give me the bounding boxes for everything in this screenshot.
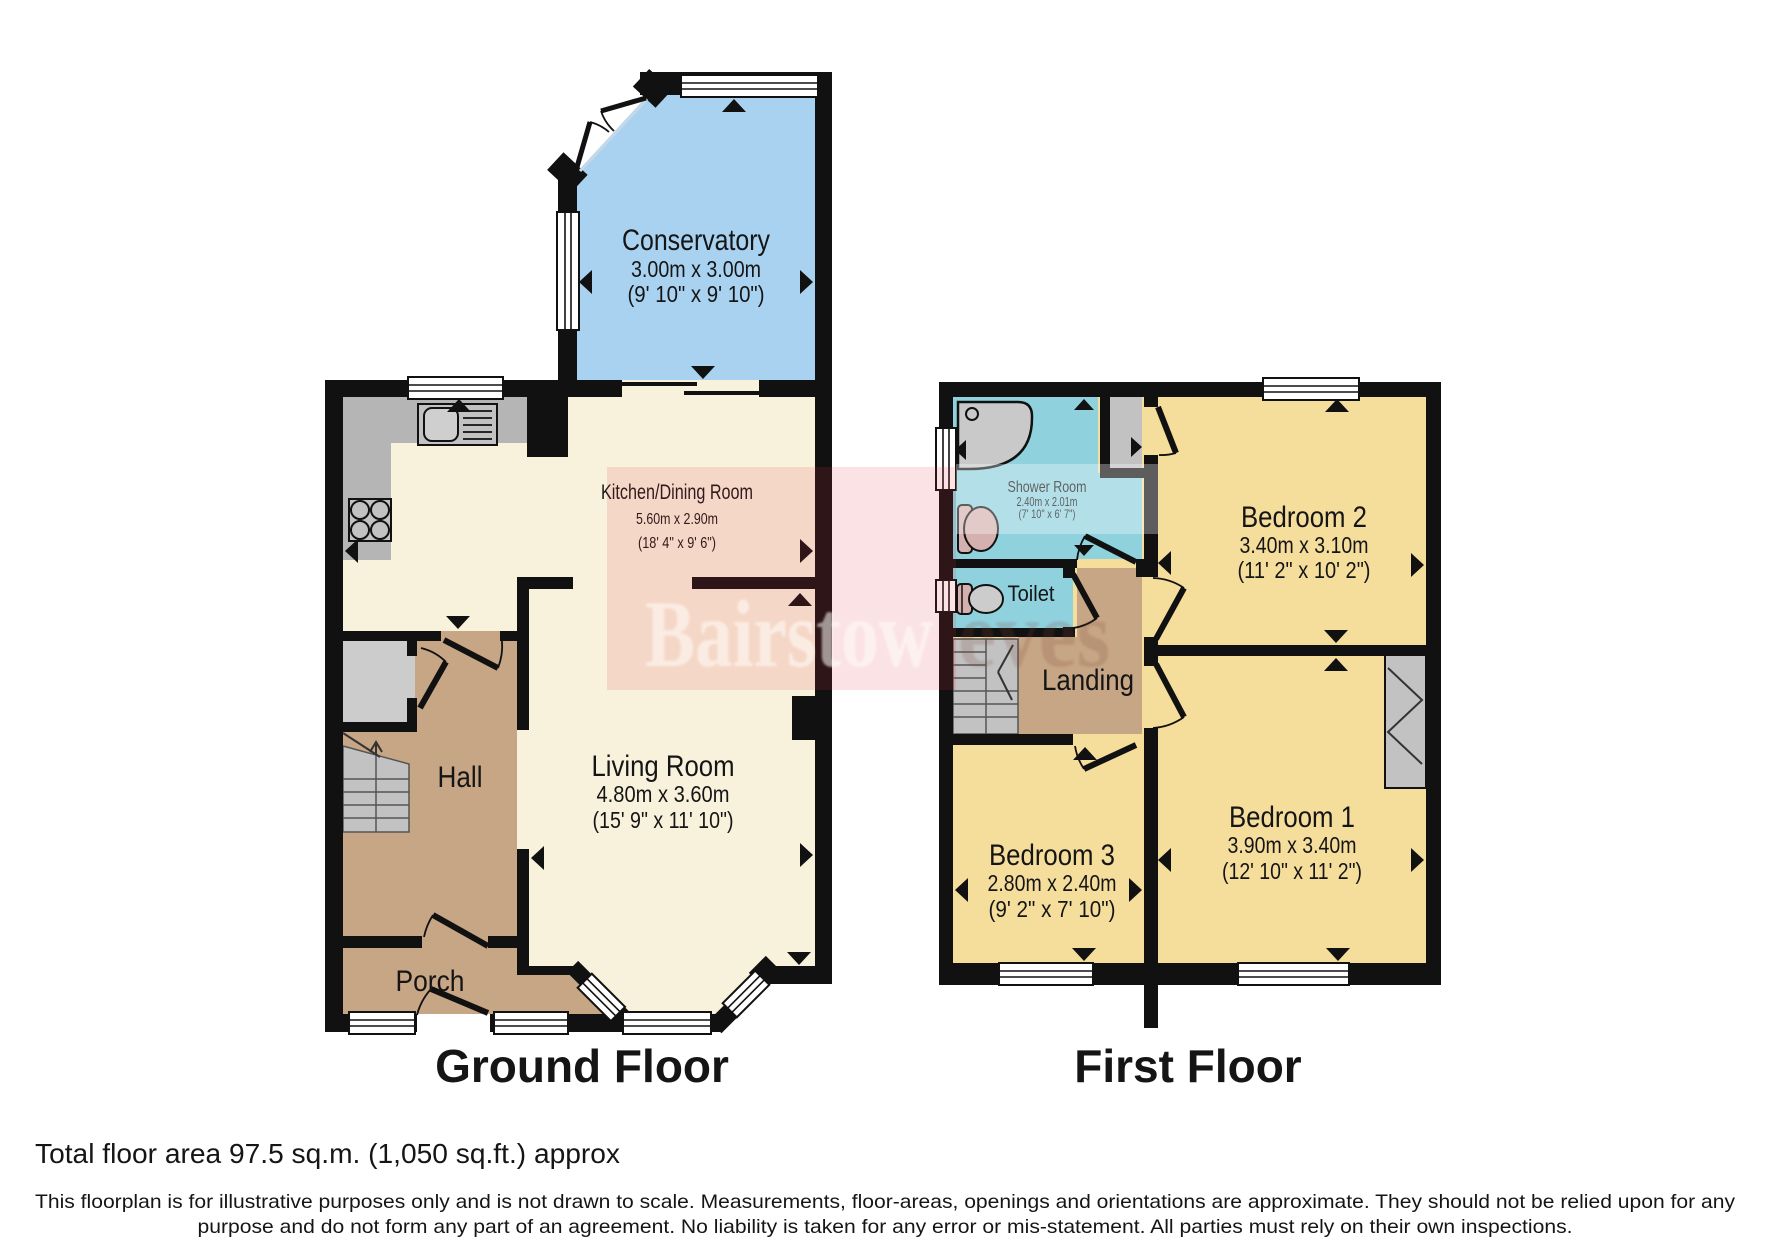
svg-text:(9' 2" x 7' 10"): (9' 2" x 7' 10") [989, 896, 1116, 922]
svg-text:eves: eves [958, 581, 1110, 687]
svg-text:(11' 2" x 10' 2"): (11' 2" x 10' 2") [1238, 557, 1371, 583]
svg-text:Bairstow: Bairstow [645, 581, 933, 687]
svg-text:Ground Floor: Ground Floor [435, 1040, 729, 1092]
svg-text:This floorplan is for illustra: This floorplan is for illustrative purpo… [35, 1191, 1735, 1213]
svg-text:Total floor area 97.5 sq.m. (1: Total floor area 97.5 sq.m. (1,050 sq.ft… [35, 1138, 620, 1169]
svg-text:Bedroom 3: Bedroom 3 [989, 839, 1115, 872]
svg-text:Hall: Hall [438, 761, 483, 794]
svg-text:Bedroom 2: Bedroom 2 [1241, 501, 1367, 534]
svg-text:Living Room: Living Room [592, 750, 735, 783]
svg-text:3.90m x 3.40m: 3.90m x 3.40m [1228, 832, 1357, 858]
svg-text:(12' 10" x 11' 2"): (12' 10" x 11' 2") [1222, 858, 1362, 884]
svg-text:purpose and do not form any pa: purpose and do not form any part of an a… [198, 1216, 1573, 1238]
svg-text:4.80m x 3.60m: 4.80m x 3.60m [597, 781, 730, 807]
svg-text:3.00m x 3.00m: 3.00m x 3.00m [631, 256, 761, 282]
svg-text:(9' 10" x 9' 10"): (9' 10" x 9' 10") [628, 281, 765, 307]
svg-text:Porch: Porch [396, 965, 465, 998]
svg-text:2.80m x 2.40m: 2.80m x 2.40m [988, 870, 1117, 896]
svg-text:3.40m x 3.10m: 3.40m x 3.10m [1240, 532, 1369, 558]
svg-text:(15' 9" x 11' 10"): (15' 9" x 11' 10") [593, 807, 734, 833]
svg-text:First Floor: First Floor [1074, 1040, 1302, 1092]
svg-text:Conservatory: Conservatory [622, 224, 770, 257]
svg-text:Bedroom 1: Bedroom 1 [1229, 801, 1355, 834]
